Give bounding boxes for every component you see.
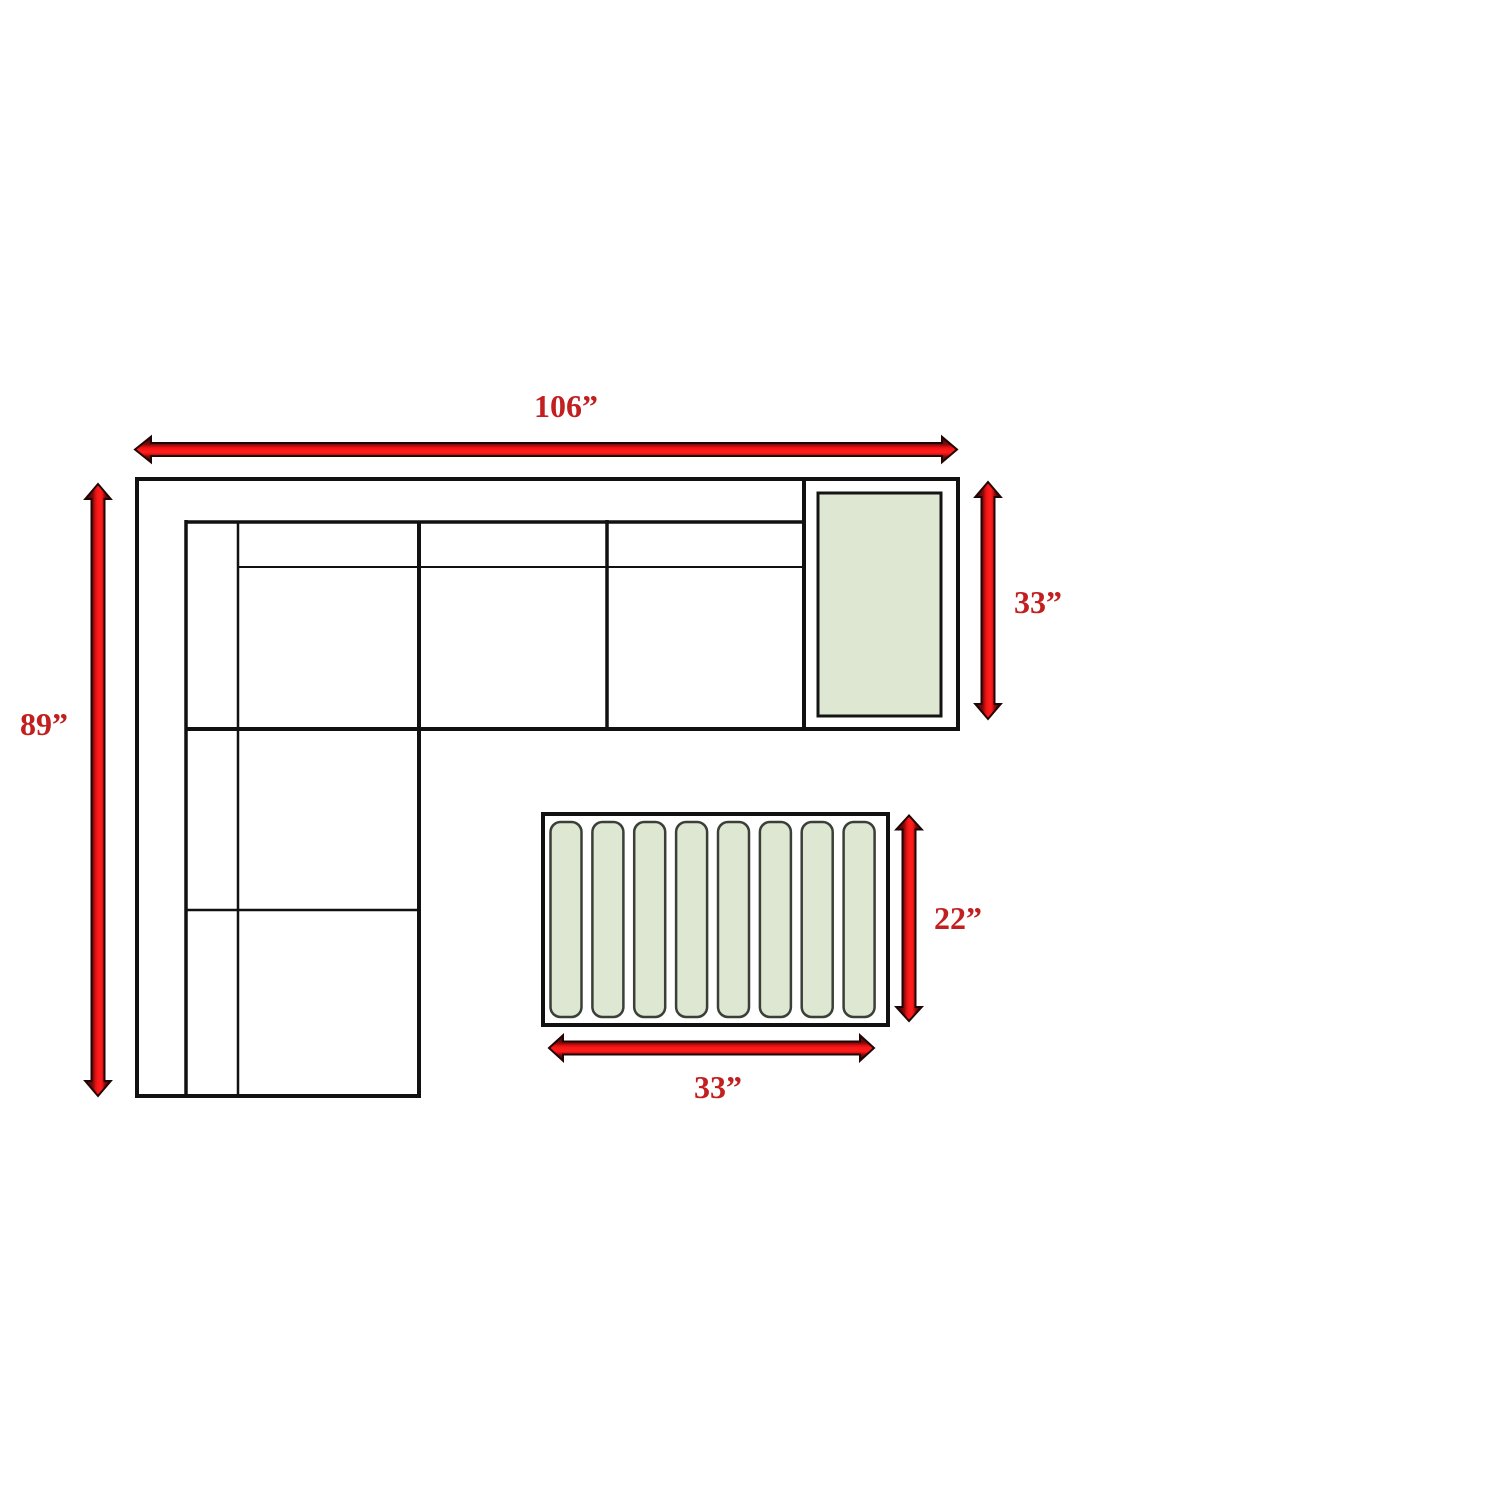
svg-text:33”: 33” xyxy=(1014,584,1062,620)
svg-text:89”: 89” xyxy=(20,706,68,742)
svg-text:106”: 106” xyxy=(534,388,598,424)
svg-text:22”: 22” xyxy=(934,900,982,936)
svg-text:33”: 33” xyxy=(694,1069,742,1105)
